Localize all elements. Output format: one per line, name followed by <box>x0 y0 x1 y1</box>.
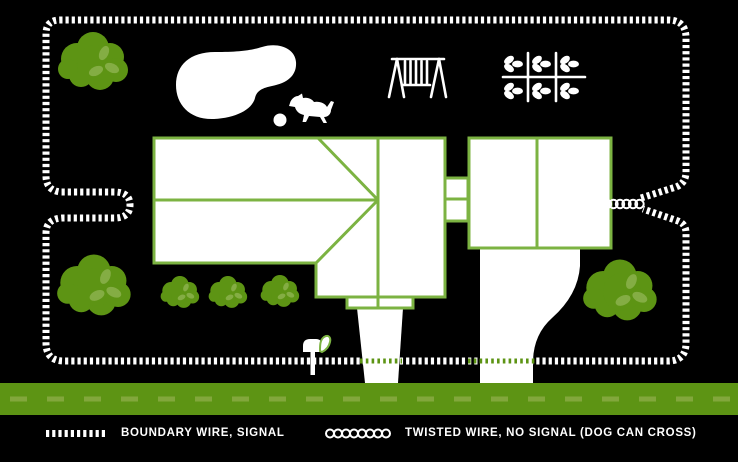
legend-twisted-label: TWISTED WIRE, NO SIGNAL (DOG CAN CROSS) <box>405 427 697 439</box>
tree <box>583 259 657 320</box>
legend-item-boundary: BOUNDARY WIRE, SIGNAL <box>45 425 285 441</box>
swing-set <box>389 59 446 97</box>
mailbox <box>303 336 330 375</box>
garage <box>469 138 611 248</box>
legend-item-twisted: TWISTED WIRE, NO SIGNAL (DOG CAN CROSS) <box>325 425 697 441</box>
swing-chains <box>402 61 430 85</box>
dog <box>289 94 334 124</box>
garden-plant <box>503 81 523 101</box>
twisted-wire-swatch-icon <box>325 428 391 439</box>
twisted-wire <box>603 200 644 208</box>
tree <box>58 32 128 90</box>
mailbox-flag <box>320 336 330 352</box>
garden-plant <box>531 81 551 101</box>
garden-plant <box>559 81 579 101</box>
boundary-wire-swatch-icon <box>45 429 107 438</box>
breezeway-upper <box>445 178 468 199</box>
porch <box>347 297 413 308</box>
tree <box>161 276 200 308</box>
tree <box>57 254 130 315</box>
garden-plant <box>503 54 523 74</box>
ball <box>274 114 287 127</box>
garden-plant <box>531 54 551 74</box>
dog-fence-yard-diagram: BOUNDARY WIRE, SIGNAL TWISTED WIRE, NO S… <box>0 0 738 462</box>
road <box>0 383 738 415</box>
swing-frame-legs <box>389 59 446 97</box>
tree <box>261 275 300 307</box>
garden-plant <box>559 54 579 74</box>
walkway <box>357 308 403 383</box>
breezeway-lower <box>445 199 468 221</box>
pond <box>176 45 296 119</box>
tree <box>209 276 248 308</box>
legend-boundary-label: BOUNDARY WIRE, SIGNAL <box>121 427 285 439</box>
garden-plot <box>503 53 585 101</box>
house-outline <box>154 138 445 297</box>
yard-map <box>0 0 738 462</box>
